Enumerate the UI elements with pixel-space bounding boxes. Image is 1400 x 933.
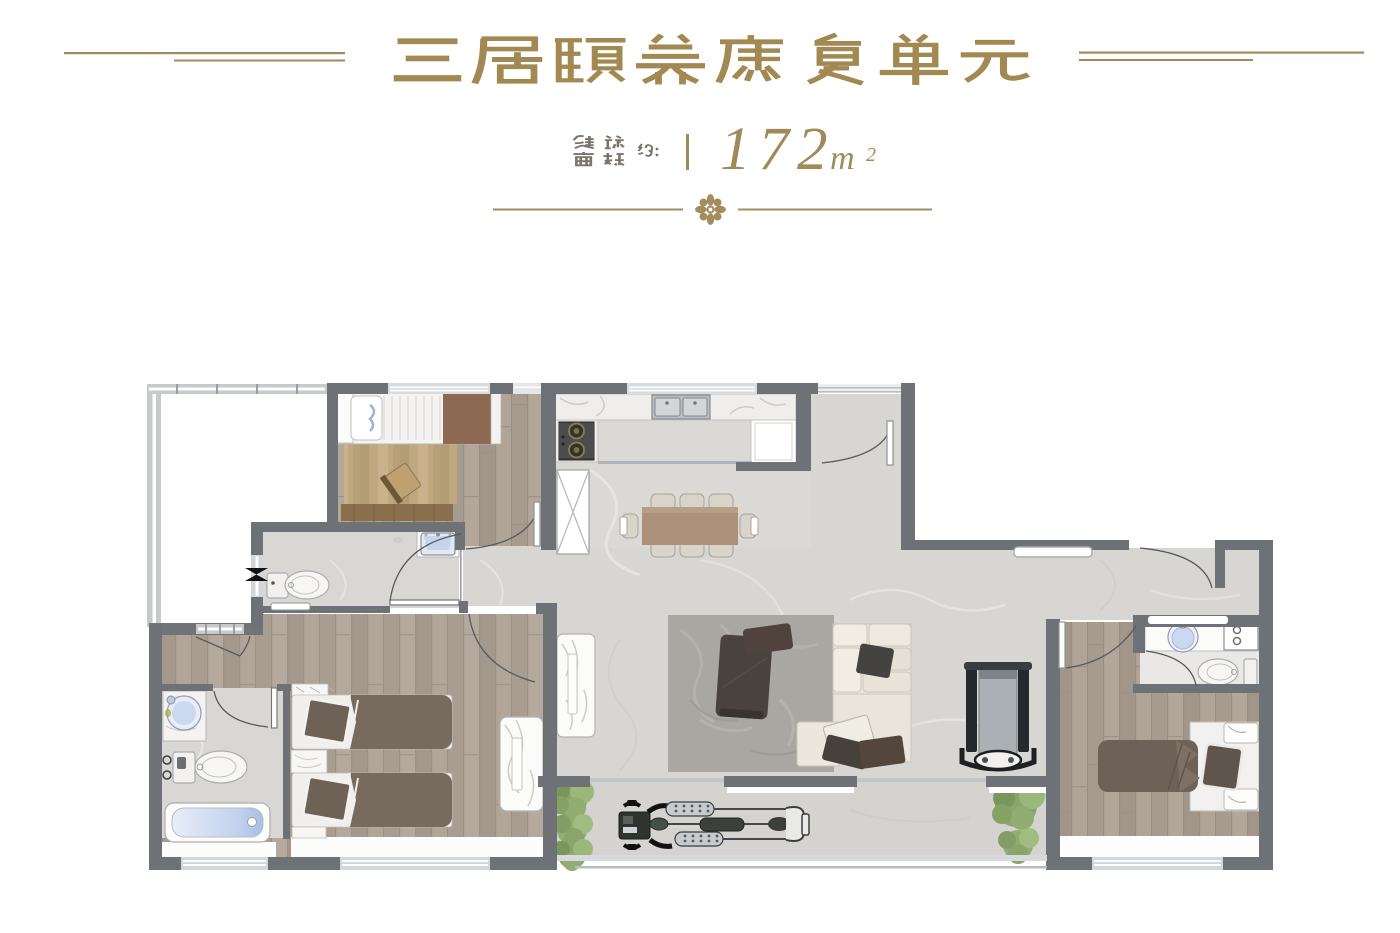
- svg-text:2: 2: [866, 144, 876, 166]
- svg-text:m: m: [830, 140, 855, 177]
- svg-text:172: 172: [720, 116, 836, 183]
